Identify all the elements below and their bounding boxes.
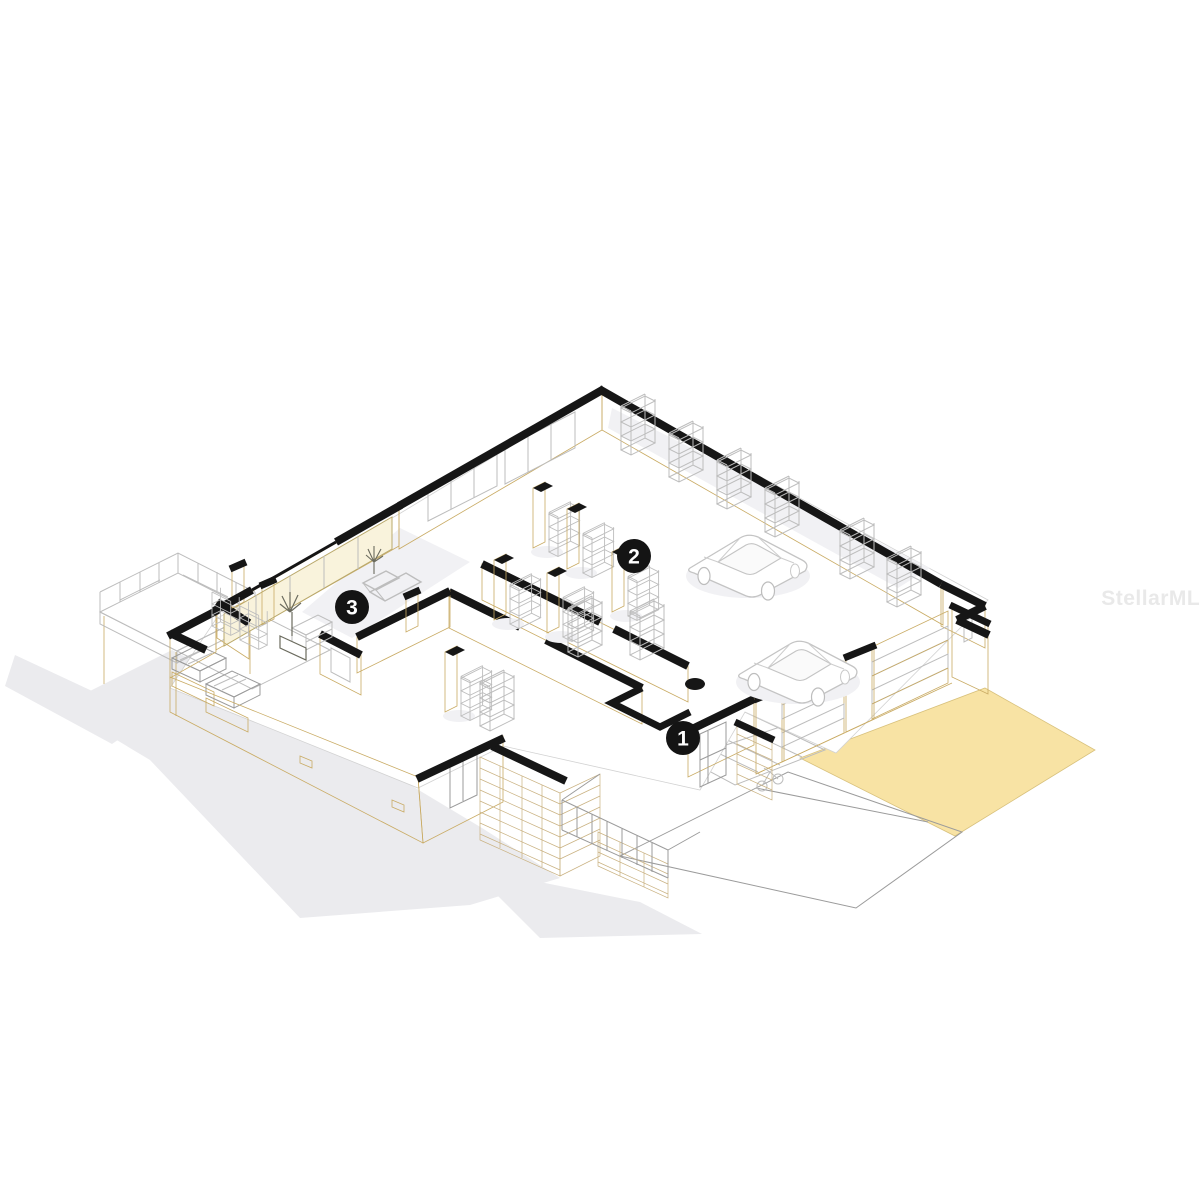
marker-2[interactable]: 2 bbox=[617, 539, 651, 573]
svg-text:1: 1 bbox=[677, 728, 689, 751]
isometric-floorplan: 1 2 3 StellarMLS bbox=[0, 0, 1200, 1200]
marker-1[interactable]: 1 bbox=[666, 721, 700, 755]
marker-3[interactable]: 3 bbox=[335, 590, 369, 624]
watermark: StellarMLS bbox=[1101, 587, 1200, 610]
svg-text:3: 3 bbox=[346, 597, 358, 620]
shadow-entry bbox=[470, 868, 702, 938]
round-side-table bbox=[685, 678, 705, 690]
svg-text:2: 2 bbox=[628, 546, 640, 569]
stone-wall-right bbox=[598, 832, 668, 898]
floorplan-canvas: 1 2 3 StellarMLS bbox=[0, 0, 1200, 1200]
